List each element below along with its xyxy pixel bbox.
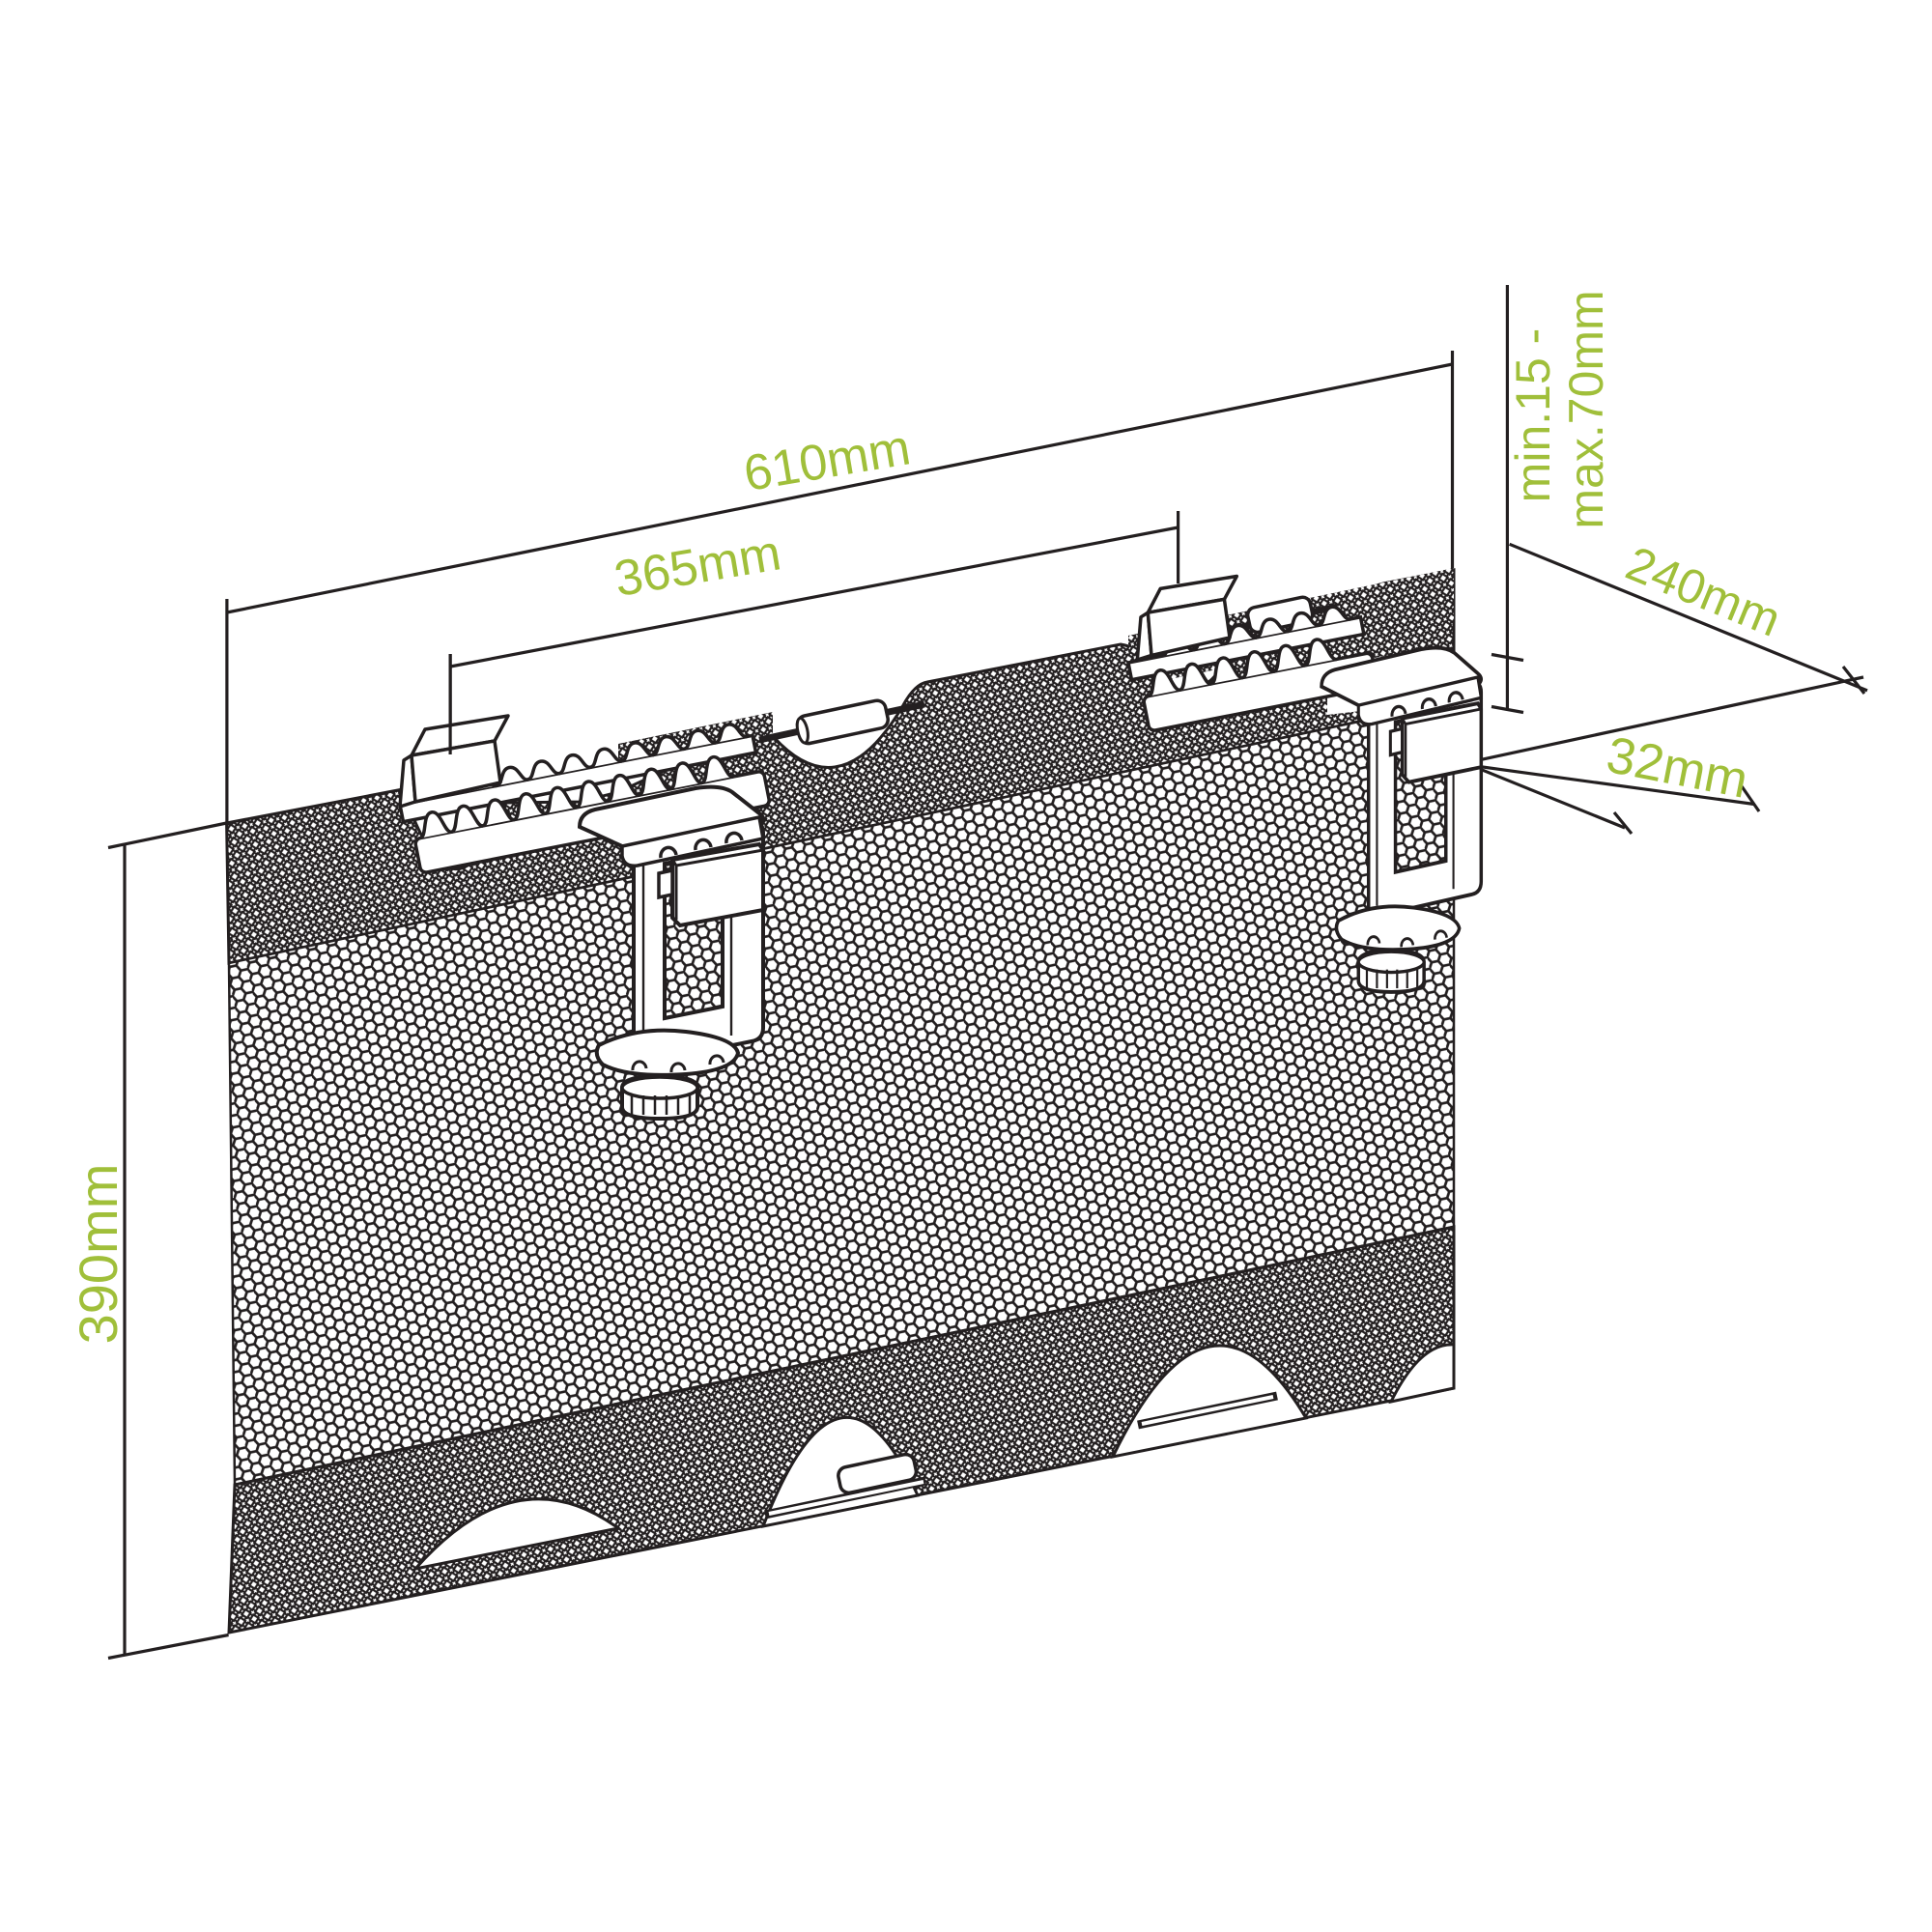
svg-text:390mm: 390mm xyxy=(68,1164,128,1345)
svg-text:max.70mm: max.70mm xyxy=(1559,290,1613,528)
svg-text:32mm: 32mm xyxy=(1602,726,1752,810)
svg-text:240mm: 240mm xyxy=(1619,536,1789,647)
svg-text:365mm: 365mm xyxy=(611,525,785,608)
svg-text:min.15 -: min.15 - xyxy=(1506,328,1560,503)
